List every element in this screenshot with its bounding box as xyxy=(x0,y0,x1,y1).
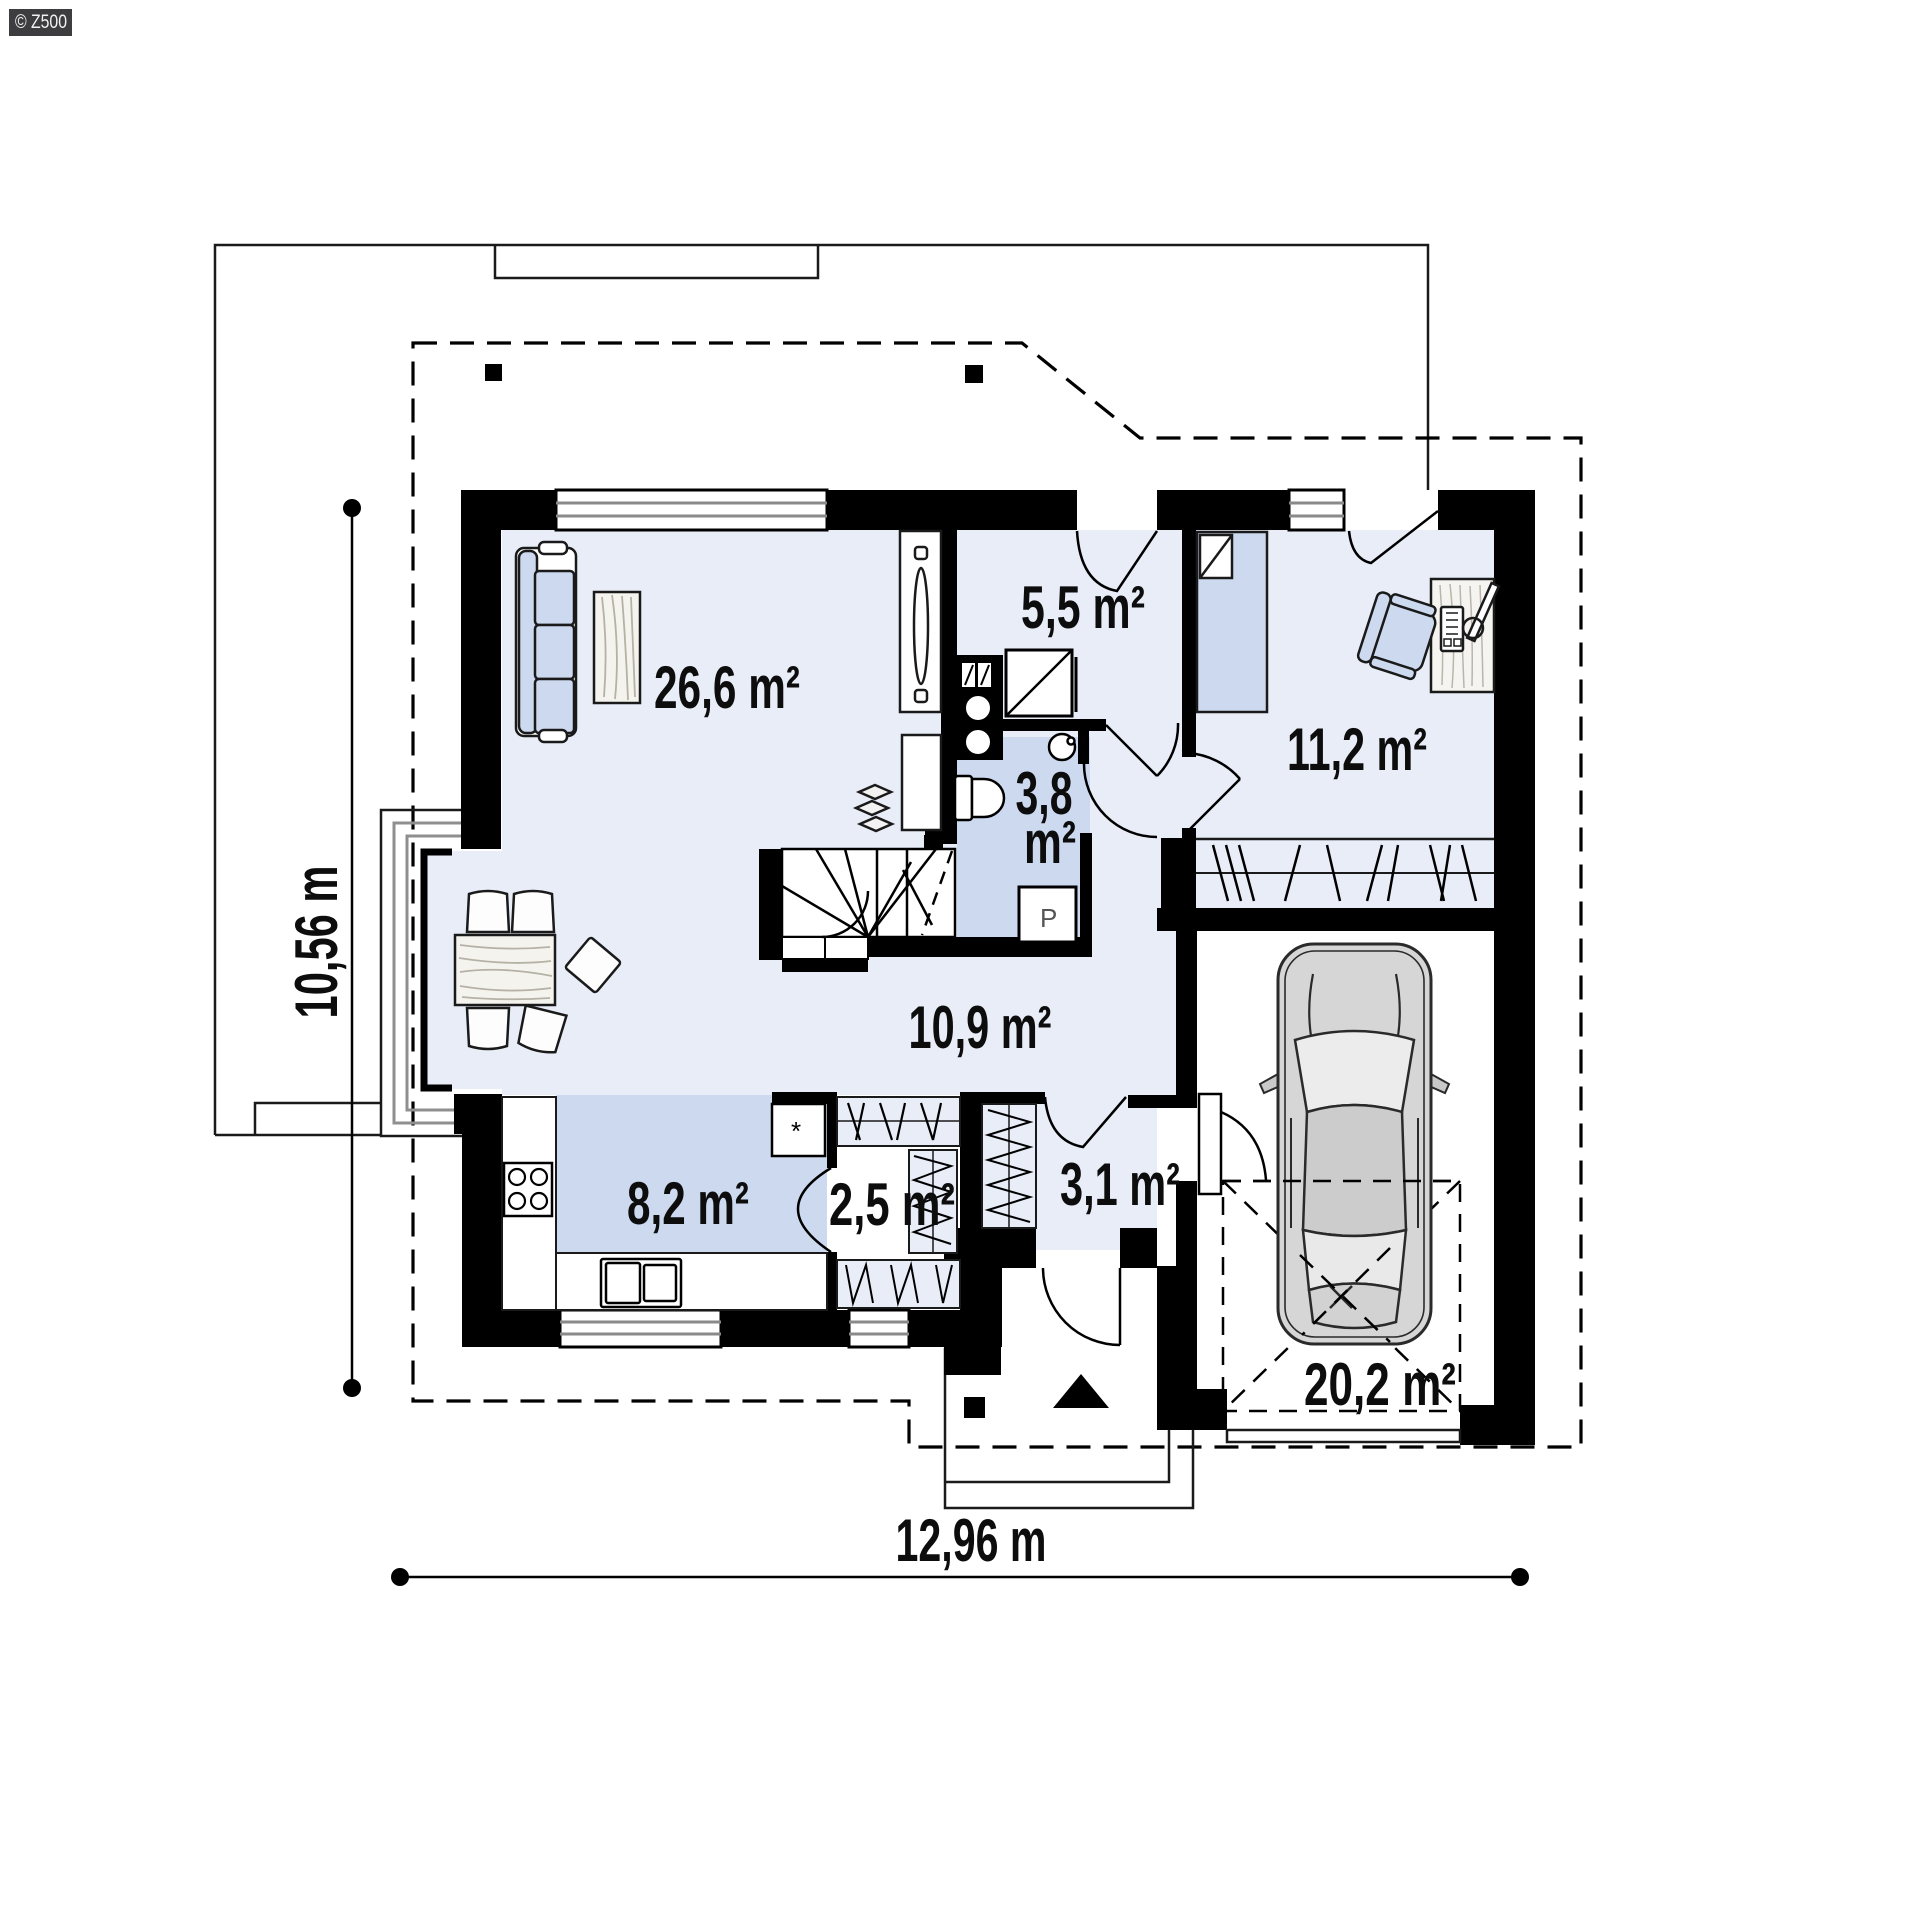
svg-text:P: P xyxy=(1040,903,1057,933)
svg-text:3,1 m²: 3,1 m² xyxy=(1060,1151,1180,1218)
svg-text:12,96 m: 12,96 m xyxy=(896,1507,1047,1574)
svg-text:© Z500: © Z500 xyxy=(15,12,67,33)
svg-text:2,5 m²: 2,5 m² xyxy=(829,1171,955,1238)
svg-text:*: * xyxy=(791,1116,801,1146)
svg-text:8,2 m²: 8,2 m² xyxy=(627,1170,749,1237)
svg-text:26,6 m²: 26,6 m² xyxy=(654,654,800,721)
svg-text:10,56 m: 10,56 m xyxy=(283,866,350,1019)
svg-text:10,9 m²: 10,9 m² xyxy=(909,994,1052,1061)
svg-text:11,2 m²: 11,2 m² xyxy=(1287,716,1427,783)
svg-text:5,5 m²: 5,5 m² xyxy=(1021,574,1145,641)
svg-text:m²: m² xyxy=(1024,809,1076,876)
svg-text:20,2 m²: 20,2 m² xyxy=(1304,1351,1456,1418)
